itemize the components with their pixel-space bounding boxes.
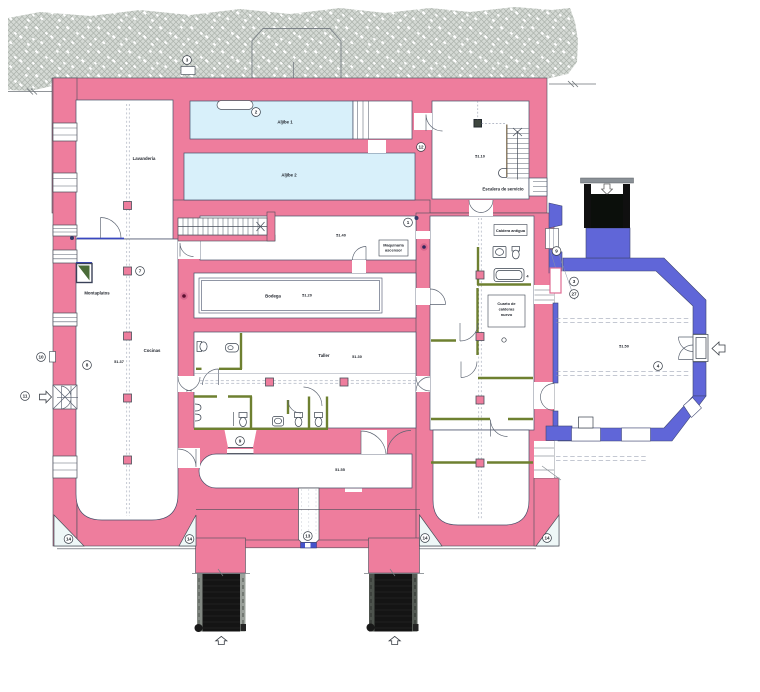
- svg-text:27: 27: [571, 292, 577, 297]
- svg-text:3: 3: [186, 58, 189, 63]
- svg-text:1: 1: [407, 220, 410, 225]
- svg-text:Montaplatos: Montaplatos: [84, 291, 110, 296]
- svg-text:2: 2: [255, 110, 258, 115]
- svg-text:51.50: 51.50: [619, 344, 629, 349]
- svg-text:9: 9: [239, 439, 242, 444]
- svg-text:14: 14: [66, 537, 72, 542]
- svg-text:11: 11: [23, 394, 28, 399]
- svg-text:51.40: 51.40: [336, 233, 346, 238]
- svg-text:Aljibe 2: Aljibe 2: [281, 173, 297, 178]
- svg-text:Taller: Taller: [318, 353, 329, 358]
- svg-text:Escalera de servicio: Escalera de servicio: [482, 187, 524, 192]
- svg-text:Cuarto de: Cuarto de: [497, 301, 516, 306]
- svg-text:7: 7: [139, 269, 142, 274]
- svg-text:Caldera antigua: Caldera antigua: [496, 228, 526, 233]
- svg-text:Lavandería: Lavandería: [133, 156, 156, 161]
- svg-text:10: 10: [38, 355, 44, 360]
- svg-text:Cocinas: Cocinas: [144, 348, 161, 353]
- svg-text:ascensor: ascensor: [385, 248, 403, 253]
- svg-text:14: 14: [544, 536, 550, 541]
- svg-text:calderas: calderas: [499, 307, 515, 312]
- svg-text:51.20: 51.20: [302, 293, 312, 298]
- svg-text:3: 3: [573, 279, 576, 284]
- svg-text:13: 13: [305, 534, 311, 539]
- svg-text:12: 12: [418, 145, 424, 150]
- svg-text:51.30: 51.30: [352, 354, 362, 359]
- svg-text:51.55: 51.55: [335, 467, 346, 472]
- svg-text:4: 4: [657, 364, 660, 369]
- svg-text:Bodega: Bodega: [265, 294, 281, 299]
- svg-text:8: 8: [86, 363, 89, 368]
- svg-text:nuevo: nuevo: [501, 312, 513, 317]
- svg-text:51.10: 51.10: [475, 154, 485, 159]
- svg-text:9: 9: [555, 249, 558, 254]
- svg-text:14: 14: [422, 536, 428, 541]
- svg-text:14: 14: [187, 537, 193, 542]
- svg-text:Aljibe 1: Aljibe 1: [277, 120, 293, 125]
- svg-text:51.37: 51.37: [114, 359, 124, 364]
